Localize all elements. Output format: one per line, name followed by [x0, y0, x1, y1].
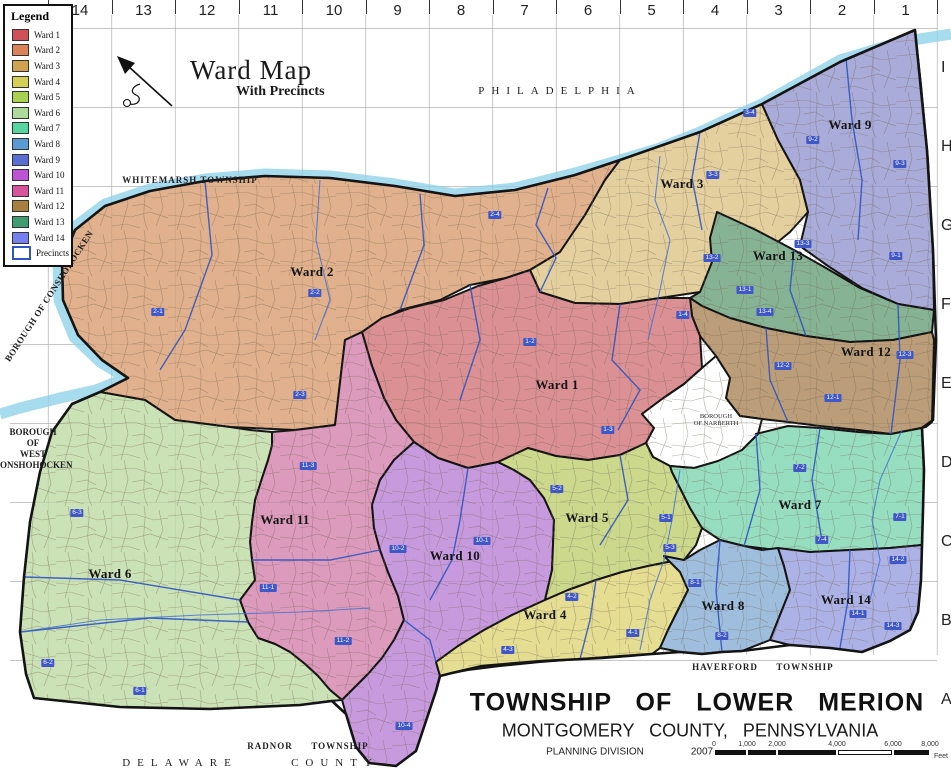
- precinct-label: 1-4: [676, 311, 689, 319]
- precinct-label: 7-1: [893, 513, 906, 521]
- legend-swatch: [12, 44, 29, 56]
- precinct-label: 9-2: [806, 136, 819, 144]
- legend-swatch: [12, 200, 29, 212]
- grid-tick: [302, 0, 303, 14]
- precinct-label: 2-3: [293, 391, 306, 399]
- legend-swatch: [12, 185, 29, 197]
- legend-row: Ward 5: [5, 89, 71, 105]
- grid-row-label: D: [941, 454, 951, 472]
- grid-row-label: F: [941, 296, 951, 314]
- map-title: Ward Map: [190, 55, 312, 86]
- legend-swatch: [12, 232, 29, 244]
- legend-swatch: [12, 138, 29, 150]
- legend-label: Ward 7: [34, 123, 60, 133]
- grid-tick: [175, 0, 176, 14]
- legend-row: Ward 6: [5, 105, 71, 121]
- precinct-label: 9-1: [889, 252, 902, 260]
- label-whitemarsh-township: WHITEMARSH TOWNSHIP: [122, 175, 257, 185]
- grid-row-label: H: [941, 138, 951, 156]
- grid-column-label: 11: [263, 2, 279, 19]
- legend-title: Legend: [5, 8, 71, 27]
- grid-row-label: C: [941, 533, 951, 551]
- legend-label: Ward 9: [34, 155, 60, 165]
- legend-swatch: [12, 246, 31, 260]
- grid-column-label: 5: [647, 2, 655, 19]
- grid-row-label: I: [941, 59, 945, 77]
- precinct-label: 11-1: [260, 584, 277, 592]
- township-title: TOWNSHIP OF LOWER MERION: [470, 689, 924, 718]
- scale-bar-segment: [838, 750, 892, 755]
- grid-row-label: G: [941, 217, 951, 235]
- legend-row: Precincts: [5, 245, 71, 261]
- precinct-label: 12-2: [774, 362, 791, 370]
- precinct-label: 14-2: [889, 556, 906, 564]
- grid-tick: [620, 0, 621, 14]
- legend-row: Ward 9: [5, 152, 71, 168]
- ward-label: Ward 11: [260, 512, 309, 528]
- scale-tick-label: 1,000: [738, 741, 756, 748]
- legend-row: Ward 7: [5, 121, 71, 137]
- precinct-label: 4-2: [565, 593, 578, 601]
- grid-tick: [937, 0, 938, 14]
- scale-tick-label: 8,000: [921, 741, 939, 748]
- legend-row: Ward 2: [5, 43, 71, 59]
- county-subtitle: MONTGOMERY COUNTY, PENNSYLVANIA: [502, 721, 878, 742]
- precinct-label: 8-2: [715, 632, 728, 640]
- precinct-label: 5-3: [663, 544, 676, 552]
- precinct-label: 2-4: [488, 211, 501, 219]
- ward-label: Ward 10: [430, 548, 480, 564]
- legend-row: Ward 3: [5, 58, 71, 74]
- planning-division-label: PLANNING DIVISION: [546, 747, 644, 758]
- precinct-label: 7-2: [793, 464, 806, 472]
- precinct-label: 14-3: [884, 622, 901, 630]
- precinct-label: 13-2: [703, 254, 720, 262]
- ward-label: Ward 7: [778, 497, 821, 513]
- precinct-label: 4-1: [626, 629, 639, 637]
- grid-column-label: 12: [199, 2, 216, 19]
- grid-column-label: 3: [774, 2, 782, 19]
- precinct-label: 2-1: [151, 308, 164, 316]
- precinct-label: 13-1: [736, 286, 753, 294]
- precinct-label: 11-2: [335, 637, 352, 645]
- scale-tick-label: 4,000: [828, 741, 846, 748]
- label-haverford-township: TOWNSHIP: [776, 662, 833, 672]
- grid-tick: [112, 0, 113, 14]
- precinct-label: 3-4: [743, 109, 756, 117]
- legend-swatch: [12, 76, 29, 88]
- grid-column-label: 7: [520, 2, 528, 19]
- legend-swatch: [12, 107, 29, 119]
- legend-label: Ward 1: [34, 30, 60, 40]
- precinct-label: 12-1: [824, 394, 841, 402]
- ward-label: Ward 9: [828, 117, 871, 133]
- legend-row: Ward 1: [5, 27, 71, 43]
- label-radnor-township: TOWNSHIP: [311, 741, 368, 751]
- legend-row: Ward 13: [5, 214, 71, 230]
- legend-label: Ward 14: [34, 233, 65, 243]
- ward-map-page: Legend Ward 1Ward 2Ward 3Ward 4Ward 5War…: [0, 0, 951, 768]
- precinct-label: 7-4: [815, 536, 828, 544]
- legend-label: Ward 13: [34, 217, 65, 227]
- legend-swatch: [12, 122, 29, 134]
- legend-label: Ward 12: [34, 201, 65, 211]
- legend-label: Ward 6: [34, 108, 60, 118]
- legend-label: Ward 2: [34, 45, 60, 55]
- legend-label: Ward 3: [34, 61, 60, 71]
- precinct-label: 4-3: [501, 646, 514, 654]
- ward-label: Ward 14: [821, 592, 871, 608]
- precinct-label: 1-2: [523, 338, 536, 346]
- legend-row: Ward 11: [5, 183, 71, 199]
- scale-bar-segment: [894, 750, 929, 755]
- grid-tick: [683, 0, 684, 14]
- map-subtitle: With Precincts: [236, 84, 325, 100]
- label-borough-of-west-conshohocken: BOROUGH OF WEST CONSHOHOCKEN: [0, 427, 78, 471]
- grid-tick: [874, 0, 875, 14]
- grid-tick: [493, 0, 494, 14]
- precinct-label: 1-3: [601, 426, 614, 434]
- precinct-label: 5-1: [659, 514, 672, 522]
- grid-tick: [429, 0, 430, 14]
- legend-swatch: [12, 169, 29, 181]
- precinct-label: 10-2: [389, 545, 406, 553]
- grid-column-label: 13: [135, 2, 152, 19]
- scale-unit-label: Feet: [934, 753, 948, 760]
- grid-column-label: 1: [901, 2, 909, 19]
- precinct-label: 6-2: [41, 659, 54, 667]
- ward-label: Ward 5: [565, 510, 608, 526]
- legend-swatch: [12, 91, 29, 103]
- precinct-label: 2-2: [308, 289, 321, 297]
- precinct-label: 14-1: [849, 610, 866, 618]
- legend-items: Ward 1Ward 2Ward 3Ward 4Ward 5Ward 6Ward…: [5, 27, 71, 261]
- grid-column-label: 14: [72, 2, 89, 19]
- precinct-label: 10-4: [395, 722, 412, 730]
- map-canvas: [0, 0, 951, 768]
- label-philadelphia: PHILADELPHIA: [478, 85, 641, 97]
- grid-tick: [556, 0, 557, 14]
- legend-swatch: [12, 154, 29, 166]
- grid-column-label: 2: [838, 2, 846, 19]
- label-delaware-county: COUNTY: [291, 757, 379, 768]
- grid-row-label: A: [941, 691, 951, 709]
- legend-label: Ward 4: [34, 77, 60, 87]
- grid-column-label: 4: [711, 2, 719, 19]
- legend-label: Ward 10: [34, 170, 65, 180]
- scale-bar-segment: [715, 750, 746, 755]
- street-texture: [20, 30, 936, 766]
- grid-tick: [239, 0, 240, 14]
- ward-label: Ward 4: [523, 607, 566, 623]
- ward-label: Ward 6: [88, 566, 131, 582]
- precinct-label: 11-3: [300, 462, 317, 470]
- precinct-label: 8-1: [688, 579, 701, 587]
- legend-row: Ward 14: [5, 230, 71, 246]
- north-arrow: [117, 56, 172, 107]
- precinct-label: 6-1: [133, 687, 146, 695]
- label-radnor: RADNOR: [247, 741, 293, 751]
- precinct-label: 9-3: [893, 160, 906, 168]
- ward-label: Ward 12: [841, 344, 891, 360]
- grid-row-label: B: [941, 612, 951, 630]
- legend-row: Ward 12: [5, 199, 71, 215]
- legend-label: Ward 11: [34, 186, 64, 196]
- label-borough-of-narberth: BOROUGH OF NARBERTH: [694, 413, 739, 427]
- precinct-label: 13-4: [756, 308, 773, 316]
- grid-tick: [810, 0, 811, 14]
- legend-label: Ward 8: [34, 139, 60, 149]
- grid-column-label: 6: [584, 2, 592, 19]
- scale-bar-segment: [778, 750, 836, 755]
- legend-swatch: [12, 60, 29, 72]
- legend-row: Ward 4: [5, 74, 71, 90]
- scale-tick-label: 0: [712, 741, 716, 748]
- legend-row: Ward 10: [5, 167, 71, 183]
- precinct-label: 12-3: [896, 351, 913, 359]
- legend-label: Precincts: [36, 248, 69, 258]
- precinct-label: 13-3: [794, 240, 811, 248]
- grid-row-label: E: [941, 375, 951, 393]
- legend-swatch: [12, 29, 29, 41]
- grid-column-label: 9: [393, 2, 401, 19]
- scale-tick-label: 6,000: [884, 741, 902, 748]
- ward-label: Ward 8: [701, 598, 744, 614]
- legend-row: Ward 8: [5, 136, 71, 152]
- ward-label: Ward 13: [753, 248, 803, 264]
- legend-swatch: [12, 216, 29, 228]
- label-haverford: HAVERFORD: [692, 662, 758, 672]
- ward-label: Ward 2: [290, 264, 333, 280]
- ward-label: Ward 1: [535, 377, 578, 393]
- grid-tick: [747, 0, 748, 14]
- legend-label: Ward 5: [34, 92, 60, 102]
- legend: Legend Ward 1Ward 2Ward 3Ward 4Ward 5War…: [3, 4, 73, 267]
- precinct-label: 5-2: [550, 485, 563, 493]
- grid-column-label: 10: [326, 2, 343, 19]
- grid-tick: [366, 0, 367, 14]
- precinct-label: 6-3: [70, 509, 83, 517]
- scale-bar-segment: [748, 750, 776, 755]
- ward-label: Ward 3: [660, 176, 703, 192]
- year-label: 2007: [691, 747, 713, 758]
- precinct-label: 10-1: [473, 537, 490, 545]
- label-delaware: DELAWARE: [122, 757, 238, 768]
- precinct-label: 3-3: [706, 171, 719, 179]
- scale-tick-label: 2,000: [768, 741, 786, 748]
- grid-column-label: 8: [457, 2, 465, 19]
